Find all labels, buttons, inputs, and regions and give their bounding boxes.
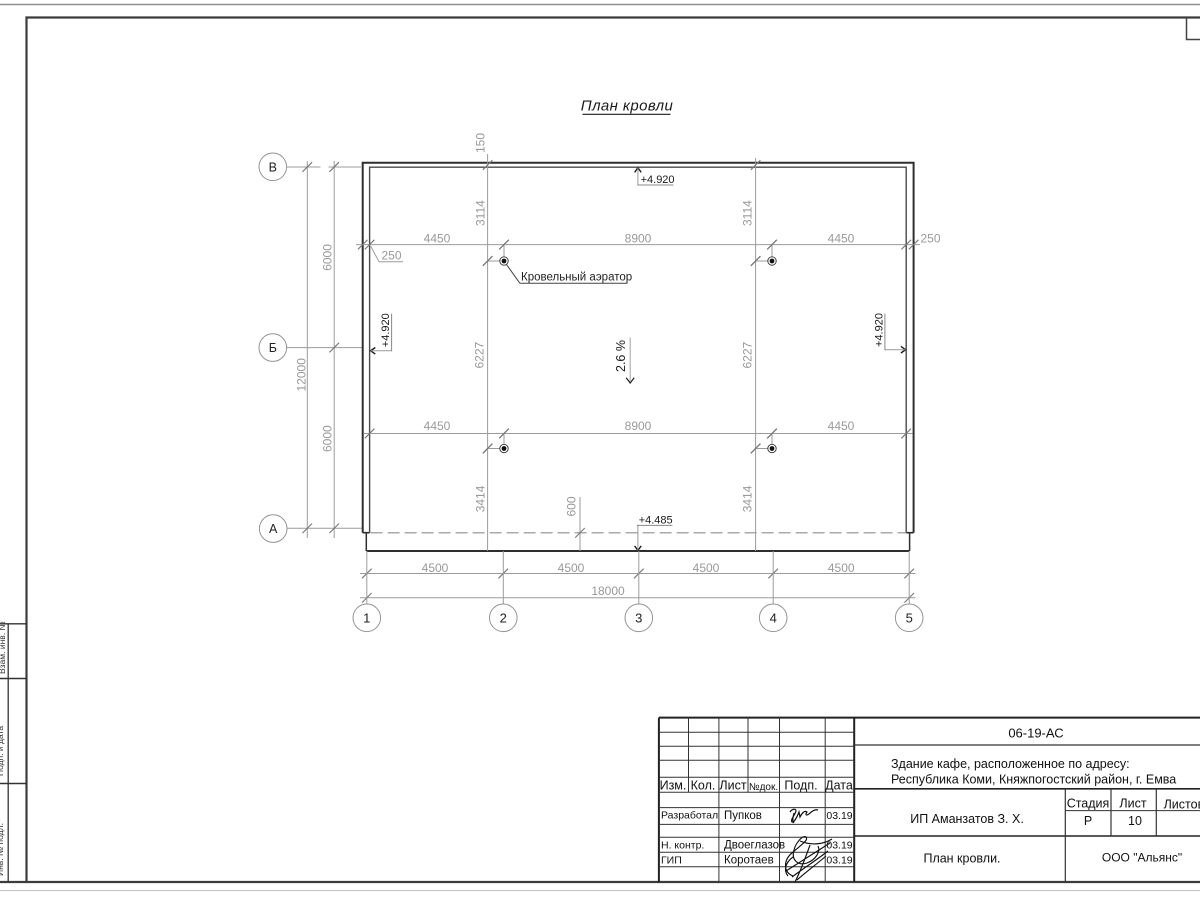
svg-text:Подп. и дата: Подп. и дата [0,726,5,776]
svg-text:2: 2 [500,611,507,626]
svg-text:План кровли: План кровли [581,98,674,115]
svg-text:18000: 18000 [591,584,625,598]
svg-text:+4.920: +4.920 [380,313,392,347]
svg-text:Лист: Лист [719,778,746,792]
svg-text:2.6 %: 2.6 % [614,340,628,372]
svg-text:В: В [269,160,277,174]
svg-text:№док.: №док. [749,782,778,793]
svg-text:+4.920: +4.920 [873,313,885,347]
svg-text:6227: 6227 [473,341,487,368]
svg-text:6000: 6000 [320,244,334,271]
svg-text:600: 600 [565,496,579,516]
svg-text:03.19: 03.19 [826,855,852,867]
svg-text:8900: 8900 [625,419,652,433]
svg-text:+4.485: +4.485 [639,515,673,527]
svg-text:А: А [269,522,278,536]
svg-text:ООО "Альянс": ООО "Альянс" [1102,851,1182,865]
svg-text:1: 1 [363,611,370,626]
svg-text:250: 250 [921,232,941,246]
svg-text:4450: 4450 [424,232,451,246]
svg-text:Лист: Лист [1119,796,1146,810]
svg-text:Республика Коми, Княжпогостски: Республика Коми, Княжпогостский район, г… [891,773,1176,787]
svg-text:Дата: Дата [825,778,853,792]
svg-text:Стадия: Стадия [1067,797,1110,811]
svg-text:4: 4 [770,611,777,626]
svg-text:5: 5 [906,611,913,626]
svg-text:06-19-АС: 06-19-АС [1008,725,1063,740]
svg-text:4450: 4450 [424,419,451,433]
svg-text:4450: 4450 [828,232,855,246]
svg-text:ГИП: ГИП [661,854,682,866]
svg-text:+4.920: +4.920 [641,174,675,186]
svg-text:Коротаев: Коротаев [724,855,774,867]
svg-text:План кровли.: План кровли. [923,852,1000,866]
svg-text:Листов: Листов [1164,797,1200,811]
svg-text:4500: 4500 [828,561,855,575]
svg-text:03.19: 03.19 [826,840,852,852]
svg-text:4450: 4450 [828,419,855,433]
svg-text:150: 150 [473,133,487,153]
svg-text:Инв. № подл.: Инв. № подл. [0,823,5,876]
svg-text:Р: Р [1084,814,1092,828]
svg-text:6000: 6000 [320,425,334,452]
svg-text:12000: 12000 [294,358,308,392]
svg-text:3114: 3114 [473,200,487,226]
svg-text:8900: 8900 [625,232,652,246]
svg-text:Кровельный аэратор: Кровельный аэратор [521,271,632,283]
svg-text:3414: 3414 [740,485,754,512]
svg-text:Разработал: Разработал [661,810,718,822]
svg-text:4500: 4500 [558,561,585,575]
svg-text:Пупков: Пупков [724,810,762,822]
svg-text:Кол.: Кол. [691,778,716,792]
svg-text:6227: 6227 [740,341,754,368]
svg-text:250: 250 [381,249,401,263]
svg-text:Взам. инв. №: Взам. инв. № [0,621,7,674]
svg-text:10: 10 [1128,814,1142,828]
svg-text:4500: 4500 [693,561,720,575]
svg-text:Н. контр.: Н. контр. [661,839,704,851]
svg-text:03.19: 03.19 [826,810,852,822]
svg-text:Б: Б [269,341,277,355]
svg-text:3: 3 [635,611,642,626]
svg-text:4500: 4500 [422,561,449,575]
svg-text:Изм.: Изм. [660,778,687,792]
svg-text:Двоеглазов: Двоеглазов [724,840,785,852]
svg-text:Подп.: Подп. [784,778,817,792]
svg-text:3414: 3414 [473,485,487,512]
svg-text:3114: 3114 [740,200,754,226]
svg-text:Здание кафе, расположенное по: Здание кафе, расположенное по адресу: [891,757,1130,771]
svg-text:ИП Аманзатов З. Х.: ИП Аманзатов З. Х. [910,812,1024,826]
